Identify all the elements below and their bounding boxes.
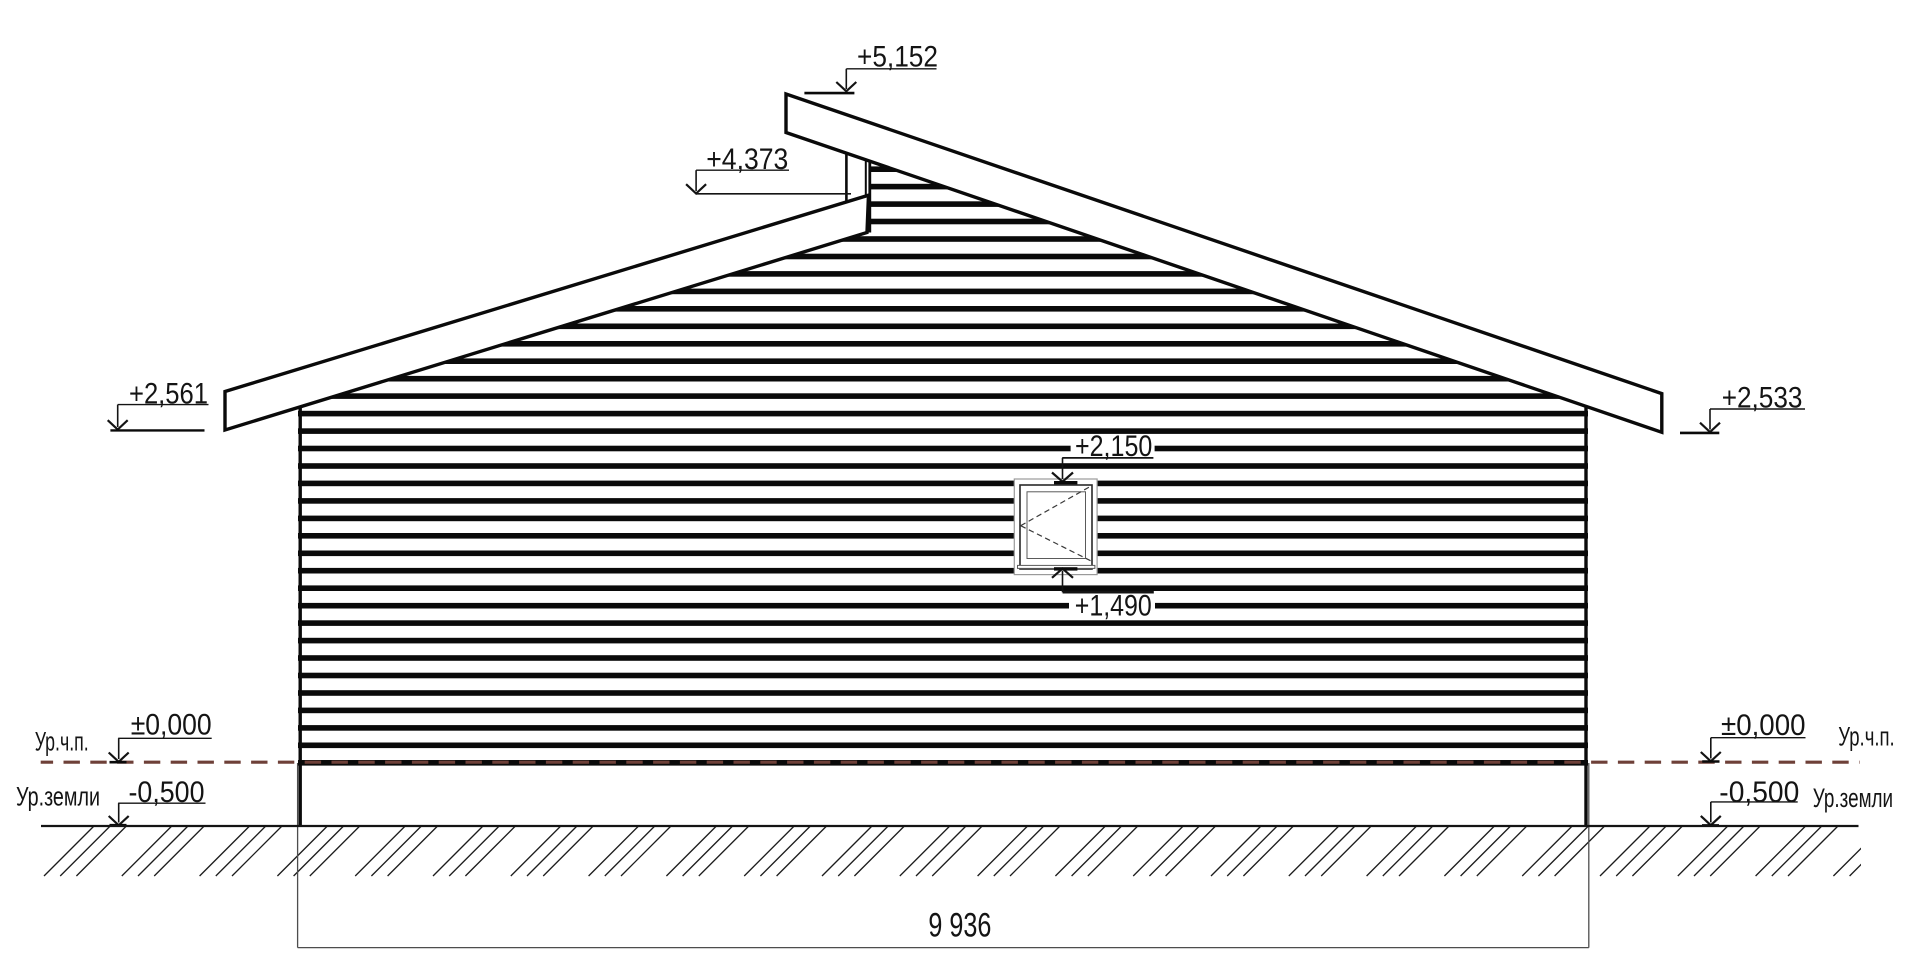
- svg-text:±0,000: ±0,000: [131, 708, 212, 741]
- svg-text:Ур.земли: Ур.земли: [16, 782, 100, 812]
- svg-text:-0,500: -0,500: [129, 776, 205, 809]
- svg-text:Ур.ч.п.: Ур.ч.п.: [1838, 722, 1894, 752]
- svg-text:Ур.ч.п.: Ур.ч.п.: [35, 727, 89, 757]
- svg-text:+1,490: +1,490: [1075, 590, 1152, 623]
- svg-text:+4,373: +4,373: [706, 143, 788, 176]
- svg-text:9 936: 9 936: [928, 906, 991, 944]
- svg-text:Ур.земли: Ур.земли: [1813, 783, 1893, 813]
- svg-text:+2,561: +2,561: [129, 378, 208, 411]
- svg-text:-0,500: -0,500: [1719, 776, 1799, 809]
